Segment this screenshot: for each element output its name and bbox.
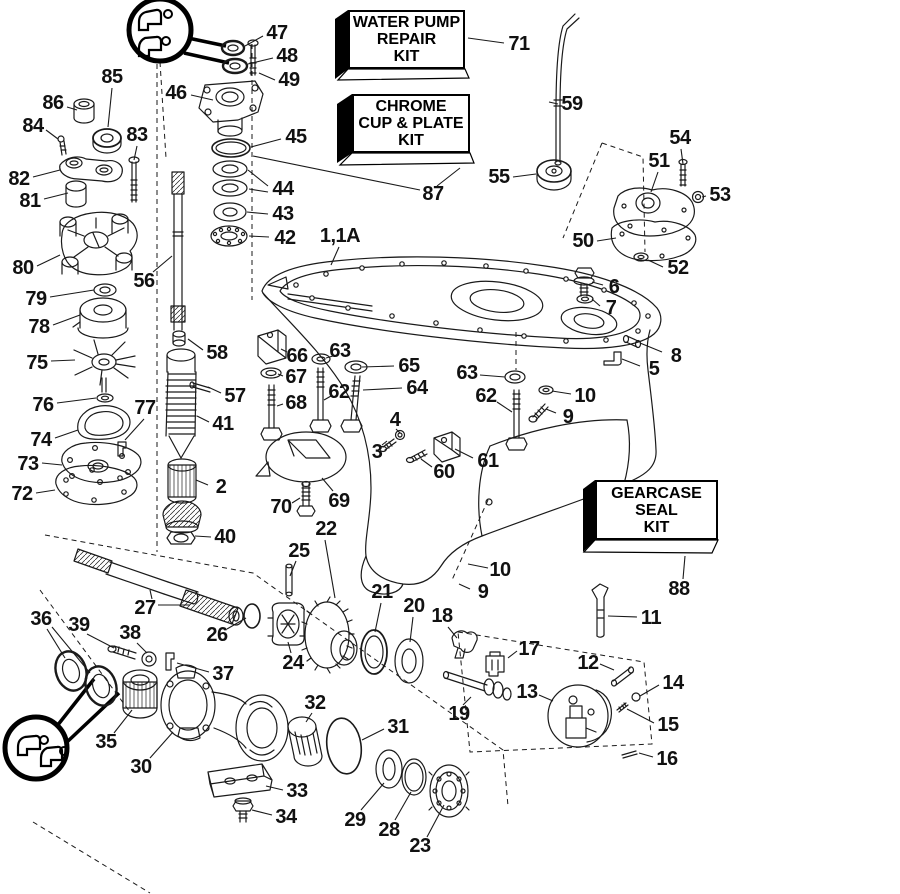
part-label-10-90: 10 [489,560,510,580]
leader-line-29 [361,783,384,810]
leader-line-41 [197,416,209,422]
drawing-bearing-2 [168,459,196,503]
leader-line-59 [549,102,558,104]
drawing-nut-40 [167,532,195,544]
drawing-washer-79 [94,284,116,296]
kit-line: GEARCASE [597,485,716,502]
part-label-5-42: 5 [649,359,660,379]
seal-clips-detail-icon [129,0,229,63]
part-label-67-45: 67 [285,367,306,387]
leader-line-80 [37,255,60,266]
part-label-14-85: 14 [662,673,683,693]
leader-line-38 [137,643,147,653]
part-label-11A-29: 1,1A [320,226,360,246]
leader-line-73 [42,463,62,465]
leader-line-36 [47,629,65,658]
drawing-bearing-35 [123,670,157,718]
part-label-4-50: 4 [390,410,401,430]
drawing-cylinder-81 [66,181,86,207]
drawing-pin-12 [612,667,634,686]
leader-line-49 [259,73,275,80]
part-label-30-73: 30 [130,757,151,777]
leader-line-22 [325,540,335,598]
kit-line: WATER PUMP [350,14,463,31]
drawing-fitting-5 [604,352,621,365]
leader-line-40 [195,536,211,537]
leader-line-76 [57,398,96,403]
drawing-washer-38 [142,652,156,666]
leader-line-83 [134,146,137,160]
drawing-ring-28 [402,759,426,795]
leader-line-11A [331,247,339,265]
leader-line-10 [552,391,571,394]
part-label-8-41: 8 [671,346,682,366]
leader-line-82 [33,170,60,177]
part-label-28-79: 28 [378,820,399,840]
part-label-55-33: 55 [488,167,509,187]
leader-line-9 [459,584,470,589]
leader-line-48 [248,58,273,64]
part-label-48-1: 48 [276,46,297,66]
part-label-52-38: 52 [667,258,688,278]
leader-line-56 [153,256,172,272]
part-label-82-12: 82 [8,169,29,189]
part-label-73-21: 73 [17,454,38,474]
part-label-36-64: 36 [30,609,51,629]
leader-line-13 [539,695,553,701]
part-label-31-75: 31 [387,717,408,737]
part-label-18-70: 18 [431,606,452,626]
part-label-40-28: 40 [214,527,235,547]
part-label-70-59: 70 [270,497,291,517]
leader-line-85 [108,88,112,127]
part-label-66-43: 66 [286,346,307,366]
leader-line-15 [627,709,654,723]
drawing-pinion-gear [163,501,201,533]
leader-line-78 [53,315,80,325]
part-label-77-19: 77 [134,398,155,418]
drawing-seal-48 [223,59,247,73]
part-label-6-39: 6 [609,277,620,297]
drawing-spacer-58 [173,331,185,346]
drawing-screw-9a [529,404,548,422]
leader-line-34 [252,810,272,815]
drawing-pump-base-46 [199,81,263,136]
part-label-61-53: 61 [477,451,498,471]
leader-line-33 [266,786,283,790]
drawing-bearing-23 [429,765,469,817]
kit-box-graphics [335,10,718,553]
part-label-50-37: 50 [572,231,593,251]
part-label-63-55: 63 [456,363,477,383]
part-label-71-31: 71 [508,34,529,54]
part-label-9-91: 9 [478,582,489,602]
dashed-guide-lines [33,44,652,893]
drawing-shift-shaft-19 [444,672,512,701]
part-label-72-22: 72 [11,484,32,504]
part-label-80-14: 80 [12,258,33,278]
drawing-shift-rod-59 [554,14,579,165]
leader-line-50 [597,238,616,241]
drawing-bolt-68 [261,385,282,440]
drawing-pump-housing-80 [60,212,137,274]
leader-line-28 [395,792,411,820]
part-label-22-60: 22 [315,519,336,539]
part-label-2-27: 2 [216,477,227,497]
leader-line-21 [375,603,381,632]
leader-line-64 [363,388,402,390]
part-label-79-15: 79 [25,289,46,309]
leader-line-75 [51,360,75,361]
part-label-43-6: 43 [272,204,293,224]
kit-line: CHROME [354,98,468,115]
part-label-49-2: 49 [278,70,299,90]
drawing-anode-66 [258,330,286,364]
kit-line: KIT [350,48,463,65]
part-label-39-65: 39 [68,615,89,635]
drawing-cup-86 [74,99,94,123]
leader-line-12 [600,664,614,670]
part-label-78-16: 78 [28,317,49,337]
leader-line-37 [177,663,209,672]
part-label-19-81: 19 [448,704,469,724]
drawing-grommet-55 [537,160,571,190]
leader-line-54 [681,149,683,164]
drawing-screw-83 [129,157,139,202]
leader-line-17 [508,651,517,658]
parts-diagram: WATER PUMP REPAIR KIT CHROME CUP & PLATE… [0,0,900,894]
part-label-9-57: 9 [563,407,574,427]
leader-line-84 [46,130,58,139]
part-label-7-40: 7 [606,298,617,318]
drawing-clutch-24 [268,603,304,645]
leader-line-55 [513,174,536,177]
drawing-bolt-62b [506,390,527,450]
part-label-81-13: 81 [19,191,40,211]
part-label-64-48: 64 [406,378,427,398]
leader-line-20 [410,617,413,642]
drawing-key-37 [166,653,174,670]
part-label-58-24: 58 [206,343,227,363]
leader-line-35 [114,710,132,733]
drawing-shift-lever-11 [592,584,608,637]
part-label-20-69: 20 [403,596,424,616]
part-label-23-80: 23 [409,836,430,856]
leader-line-8 [640,343,662,352]
drawing-spring-15 [617,703,628,712]
leader-line-2 [196,480,208,485]
leader-line-72 [36,490,55,493]
part-label-37-71: 37 [212,664,233,684]
leader-line-79 [50,290,94,297]
part-label-29-78: 29 [344,810,365,830]
leader-line-25 [290,561,296,576]
part-label-54-34: 54 [669,128,690,148]
drawing-pin-25 [286,564,292,596]
drawing-oring-45 [212,139,250,157]
part-label-47-0: 47 [266,23,287,43]
leader-line-31 [362,729,384,740]
drawing-driveshaft-56 [171,172,185,330]
leader-line-16 [639,753,653,757]
part-label-60-52: 60 [433,462,454,482]
drawing-cover-51 [614,188,695,236]
part-label-16-87: 16 [656,749,677,769]
leader-line-9 [546,409,556,413]
leader-line-10 [468,564,488,568]
leader-line-62 [497,402,512,412]
leader-line-58 [188,339,203,350]
leader-line-30 [150,732,173,758]
drawing-ring-21 [361,630,387,674]
part-label-32-74: 32 [304,693,325,713]
kit-line: SEAL [597,502,716,519]
part-label-51-35: 51 [648,151,669,171]
drawing-ball-14 [632,693,640,701]
leader-line-81 [44,193,68,199]
drawing-washer-29 [376,750,402,788]
part-label-24-67: 24 [282,653,303,673]
part-label-45-4: 45 [285,127,306,147]
kit-line: KIT [597,519,716,536]
part-label-76-18: 76 [32,395,53,415]
leader-line-45 [251,139,281,147]
leader-line-43 [247,212,268,214]
drawing-washer-7 [577,295,593,303]
drawing-shift-fork-18 [452,631,477,658]
leader-line-71 [468,38,504,43]
part-label-56-23: 56 [133,271,154,291]
seal-clips-detail-icon-lower [5,679,119,779]
part-label-33-76: 33 [286,781,307,801]
drawing-shift-cam-13 [548,685,611,747]
part-label-69-58: 69 [328,491,349,511]
part-label-74-20: 74 [30,430,51,450]
drawing-washer-67 [261,368,281,378]
part-label-53-36: 53 [709,185,730,205]
part-label-57-25: 57 [224,386,245,406]
leader-line-14 [640,685,659,696]
chrome-cup-plate-kit-box: CHROME CUP & PLATE KIT [352,94,470,153]
drawing-washer-10a [539,386,553,394]
part-label-3-51: 3 [372,442,383,462]
part-label-27-62: 27 [134,598,155,618]
part-label-46-3: 46 [165,83,186,103]
part-label-86-9: 86 [42,93,63,113]
leader-line-63 [480,375,505,377]
leader-line-44 [248,170,268,186]
part-label-85-8: 85 [101,67,122,87]
drawing-screw-39 [108,646,136,659]
drawing-ring-26 [244,604,260,628]
part-label-38-66: 38 [119,623,140,643]
leader-line-47 [245,36,263,46]
drawing-washer-43 [214,203,246,221]
leader-line-53 [702,196,706,197]
part-label-25-61: 25 [288,541,309,561]
part-label-65-46: 65 [398,356,419,376]
drawing-washer-4 [396,431,405,440]
part-label-88-89: 88 [668,579,689,599]
part-label-87-30: 87 [422,184,443,204]
kit-line: CUP & PLATE [354,115,468,132]
drawing-bolt-34 [233,798,253,822]
drawing-gasket-50 [611,220,695,261]
part-label-84-10: 84 [22,116,43,136]
drawing-screw-49 [248,40,258,75]
part-label-21-68: 21 [371,582,392,602]
part-label-41-26: 41 [212,414,233,434]
leader-line-39 [87,634,114,648]
drawing-washer-76 [97,394,113,402]
part-label-42-7: 42 [274,228,295,248]
drawing-cradle-17 [486,652,504,676]
drawing-screw-84 [58,136,66,155]
drawing-anode-plate-33 [208,764,272,797]
drawing-anode-61 [434,432,460,462]
gearcase-seal-kit-box: GEARCASE SEAL KIT [595,480,718,540]
leader-line-74 [55,430,78,438]
part-label-12-83: 12 [577,653,598,673]
part-label-17-82: 17 [518,639,539,659]
drawing-impeller-75 [74,340,135,392]
drawing-gasket-74 [78,406,130,440]
drawing-pin-16 [622,751,637,758]
leader-line-7 [592,299,600,306]
part-label-75-17: 75 [26,353,47,373]
part-label-62-47: 62 [328,382,349,402]
drawing-forward-gear [300,597,357,673]
part-label-68-49: 68 [285,393,306,413]
drawing-bearing-32 [288,717,322,766]
leader-line-68 [277,404,283,406]
part-label-10-56: 10 [574,386,595,406]
kit-line: REPAIR [350,31,463,48]
leader-line-86 [67,107,77,110]
part-label-13-84: 13 [516,682,537,702]
part-label-44-5: 44 [272,179,293,199]
part-label-35-72: 35 [95,732,116,752]
drawing-oring-31 [323,716,364,776]
part-label-26-63: 26 [206,625,227,645]
drawing-seal-47 [222,41,244,55]
drawing-bracket-82 [60,157,123,182]
part-label-11-88: 11 [641,608,661,628]
drawing-pin-57 [190,382,210,392]
part-label-34-77: 34 [275,807,296,827]
leader-line-88 [683,556,685,579]
part-label-63-44: 63 [329,341,350,361]
part-label-59-32: 59 [561,94,582,114]
part-label-83-11: 83 [126,125,147,145]
part-label-15-86: 15 [657,715,678,735]
drawing-washer-53 [693,192,704,203]
part-label-62-54: 62 [475,386,496,406]
drawing-wear-cup-78 [73,298,128,338]
drawing-propshaft-27 [74,549,243,625]
leader-line-60 [421,459,432,467]
leader-line-6 [592,282,603,285]
drawing-plate-73 [62,442,141,484]
drawing-washer-63a [312,354,330,364]
leader-line-11 [608,616,637,617]
drawing-grommet-85 [93,129,121,153]
drawing-washer-20 [395,639,423,683]
drawing-bearing-42 [211,226,247,246]
leader-line-5 [622,359,640,366]
kit-line: KIT [354,132,468,149]
leader-line-70 [292,498,300,503]
drawing-washers-44 [213,161,247,196]
drawing-washer-63b [505,371,525,383]
drawing-pinion-shaft-41 [166,349,196,458]
water-pump-repair-kit-box: WATER PUMP REPAIR KIT [348,10,465,69]
